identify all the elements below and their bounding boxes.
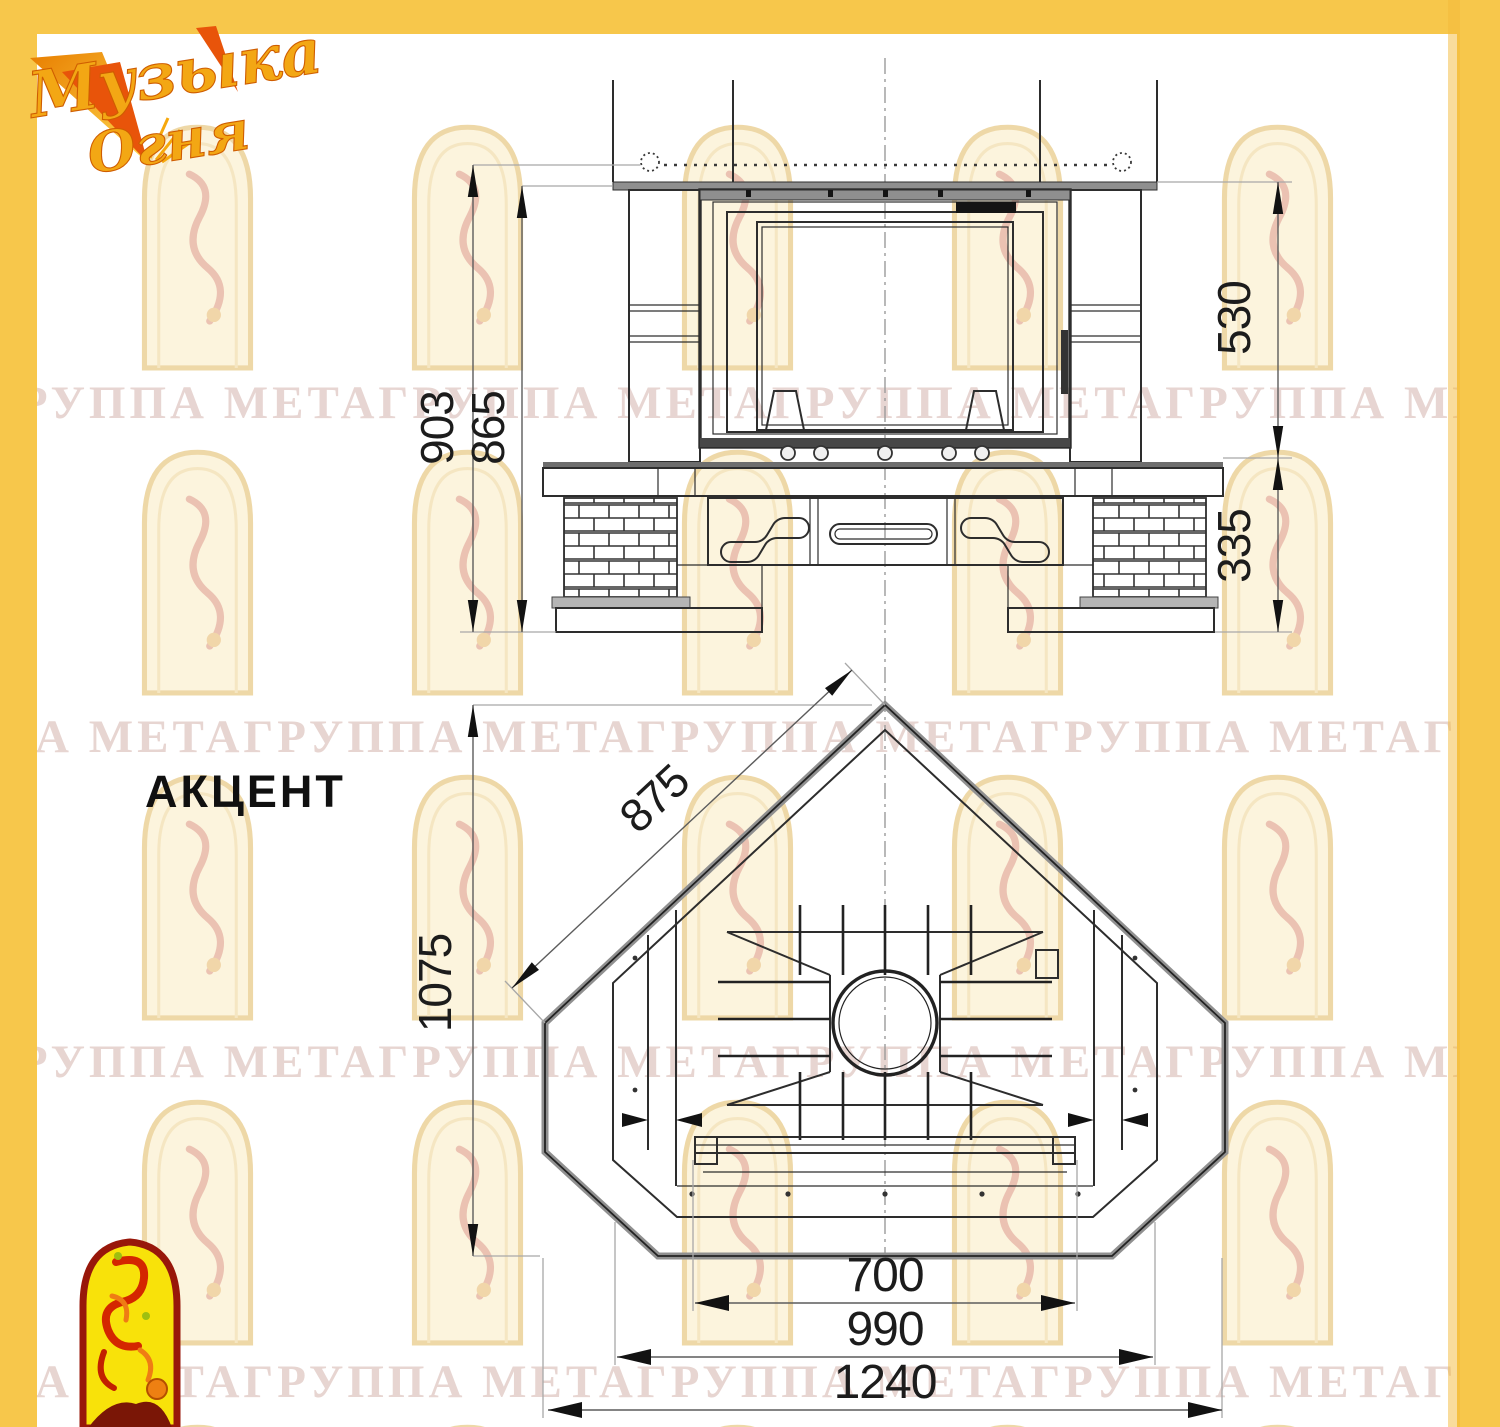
dim-label-1240: 1240 (834, 1356, 937, 1409)
brick-pedestal-right (1093, 498, 1206, 597)
door-handle (1061, 330, 1068, 394)
page: ГРУППА МЕТАГРУППА МЕТАГРУППА МЕТАГРУППА … (0, 0, 1500, 1427)
molding-right (1080, 597, 1218, 608)
frame-right (1457, 0, 1500, 1427)
molding-left (552, 597, 690, 608)
arch-logo-sun (147, 1379, 167, 1399)
wall-dot (633, 956, 638, 961)
dim-label-1075: 1075 (409, 934, 461, 1032)
frame-right-shade (1448, 0, 1460, 1427)
dim-label-865: 865 (462, 391, 514, 465)
arch-logo-dot (114, 1252, 122, 1260)
fireplace-dimension-drawing: ГРУППА МЕТАГРУППА МЕТАГРУППА МЕТАГРУППА … (0, 0, 1500, 1427)
watermark-row: ГРУППА МЕТАГРУППА МЕТАГРУППА МЕТАГРУППА … (0, 711, 1500, 763)
watermark-row: ГРУППА МЕТАГРУППА МЕТАГРУППА МЕТАГРУППА … (0, 1356, 1500, 1408)
brick-pedestal-left (564, 498, 677, 597)
wall-dot (1133, 956, 1138, 961)
dim-label-700: 700 (846, 1249, 923, 1302)
frame-left (0, 0, 37, 1427)
arch-logo-window (83, 1242, 177, 1427)
dim-label-903: 903 (411, 391, 463, 465)
watermark-row: ГРУППА МЕТАГРУППА МЕТАГРУППА МЕТАГРУППА … (0, 377, 1500, 429)
brand-nameplate (956, 202, 1016, 213)
wall-dot (1133, 1088, 1138, 1093)
watermark-row: ГРУППА МЕТАГРУППА МЕТАГРУППА МЕТАГРУППА … (0, 1036, 1500, 1088)
dim-label-530: 530 (1208, 281, 1260, 355)
dim-label-990: 990 (846, 1303, 923, 1356)
wall-dot (633, 1088, 638, 1093)
arch-logo-dot (142, 1312, 150, 1320)
model-name-label: АКЦЕНТ (145, 766, 346, 817)
arch-logo-bottom-left (83, 1242, 177, 1427)
dim-label-335: 335 (1208, 509, 1260, 583)
